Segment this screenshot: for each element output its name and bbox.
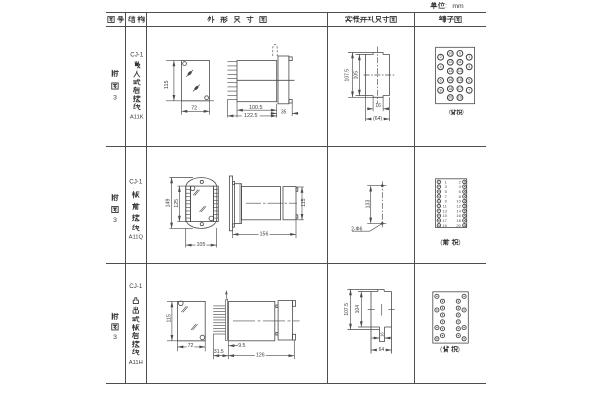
svg-text:(: ( [440, 346, 443, 353]
svg-text:6: 6 [440, 79, 442, 83]
svg-text:125: 125 [174, 199, 180, 208]
svg-text:64: 64 [379, 347, 385, 353]
svg-text:72: 72 [191, 105, 197, 111]
svg-text:35: 35 [281, 109, 287, 115]
svg-text:CJ-1: CJ-1 [129, 179, 143, 186]
svg-text:16: 16 [380, 332, 385, 337]
svg-text:(64): (64) [373, 116, 382, 122]
svg-text:A11K: A11K [130, 115, 144, 121]
svg-text:133: 133 [365, 200, 371, 209]
svg-text:CJ-1: CJ-1 [129, 283, 143, 290]
svg-text:104: 104 [355, 305, 361, 314]
svg-text:19: 19 [442, 223, 447, 228]
svg-text:17: 17 [458, 87, 462, 91]
svg-text:3: 3 [113, 95, 117, 102]
svg-text:126: 126 [256, 353, 265, 359]
svg-text:4: 4 [440, 65, 442, 69]
svg-text:9.5: 9.5 [238, 343, 245, 349]
svg-text:3: 3 [468, 65, 470, 69]
svg-text:115: 115 [166, 314, 172, 322]
svg-text:2-Φ6: 2-Φ6 [351, 226, 362, 232]
svg-text:): ) [458, 239, 460, 246]
svg-text:149: 149 [166, 199, 172, 208]
svg-text:107.5: 107.5 [344, 69, 350, 82]
svg-text:): ) [458, 346, 460, 353]
svg-text:3: 3 [113, 334, 117, 341]
svg-text:10: 10 [448, 51, 452, 55]
svg-text:13: 13 [458, 69, 462, 73]
svg-text::: : [445, 2, 447, 9]
svg-text:15: 15 [458, 78, 462, 82]
svg-text:19: 19 [458, 96, 462, 100]
svg-text:11: 11 [458, 60, 462, 64]
svg-text:115: 115 [301, 198, 307, 206]
svg-text:3: 3 [113, 217, 117, 224]
svg-text:107.5: 107.5 [344, 303, 350, 316]
svg-text:8: 8 [440, 88, 442, 92]
svg-text:9: 9 [459, 51, 461, 55]
svg-text:12: 12 [448, 60, 452, 64]
svg-text:31.5: 31.5 [214, 349, 224, 355]
svg-text:5: 5 [468, 79, 470, 83]
svg-text:16: 16 [448, 78, 452, 82]
svg-text:100.5: 100.5 [249, 105, 263, 111]
svg-text:(: ( [449, 110, 451, 116]
svg-text:122.5: 122.5 [244, 113, 258, 119]
svg-text:1: 1 [468, 55, 470, 59]
svg-text:14: 14 [448, 69, 452, 73]
svg-text:mm: mm [452, 3, 464, 10]
svg-text:2: 2 [440, 55, 442, 59]
svg-text:105: 105 [197, 242, 206, 248]
svg-text:115: 115 [164, 81, 170, 90]
svg-text:A11H: A11H [129, 360, 143, 366]
svg-text:72: 72 [188, 343, 194, 349]
svg-text:7: 7 [468, 88, 470, 92]
svg-text:CJ-1: CJ-1 [130, 52, 144, 59]
svg-text:A11Q: A11Q [129, 235, 144, 241]
svg-text:16: 16 [375, 103, 381, 109]
svg-text:18: 18 [448, 87, 452, 91]
svg-text:): ) [462, 110, 464, 116]
svg-text:20: 20 [448, 96, 452, 100]
svg-text:156: 156 [260, 231, 269, 237]
svg-text:20: 20 [456, 223, 461, 228]
svg-text:105: 105 [354, 71, 360, 80]
